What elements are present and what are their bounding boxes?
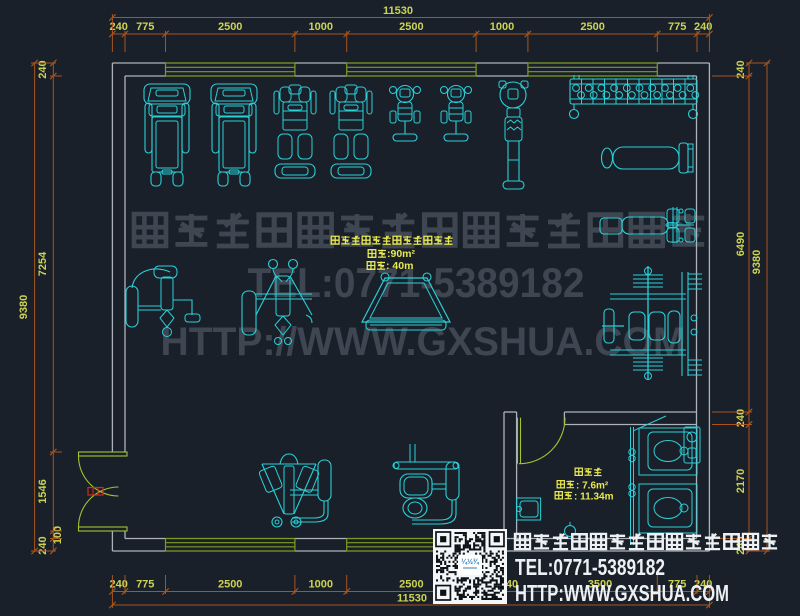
- svg-text:2500: 2500: [218, 21, 242, 33]
- svg-text:1000: 1000: [309, 21, 333, 33]
- svg-text::90m²: :90m²: [387, 248, 416, 260]
- svg-text:2500: 2500: [399, 21, 423, 33]
- svg-text:11530: 11530: [397, 593, 427, 605]
- svg-text:775: 775: [136, 21, 154, 33]
- svg-text:1000: 1000: [309, 579, 333, 591]
- svg-text:9380: 9380: [751, 250, 763, 274]
- svg-text:6490: 6490: [735, 232, 747, 256]
- svg-text:7254: 7254: [37, 251, 49, 276]
- svg-text:2500: 2500: [399, 579, 423, 591]
- svg-text:11530: 11530: [383, 5, 413, 17]
- svg-text:240: 240: [37, 536, 49, 554]
- svg-text:1546: 1546: [37, 479, 49, 503]
- svg-text:775: 775: [668, 21, 686, 33]
- svg-text:2170: 2170: [735, 469, 747, 493]
- svg-text:1000: 1000: [490, 21, 514, 33]
- svg-text:2500: 2500: [218, 579, 242, 591]
- svg-text:2500: 2500: [580, 21, 604, 33]
- svg-text:100: 100: [52, 526, 64, 544]
- svg-text:: 7.6m²: : 7.6m²: [576, 481, 609, 492]
- svg-text:775: 775: [136, 579, 154, 591]
- svg-text:¼½¾: ¼½¾: [461, 558, 480, 566]
- svg-text:: 40m: : 40m: [386, 260, 413, 272]
- svg-text:: 11.34m: : 11.34m: [574, 492, 614, 503]
- svg-text:TEL:0771-5389182: TEL:0771-5389182: [515, 554, 665, 580]
- svg-text:9380: 9380: [18, 295, 30, 319]
- svg-text:HTTP:WWW.GXSHUA.COM: HTTP:WWW.GXSHUA.COM: [515, 580, 729, 606]
